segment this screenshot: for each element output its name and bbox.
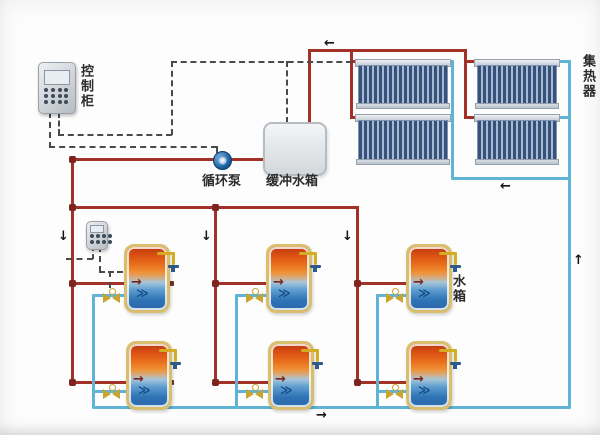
flow-arrow-down-3: ↓ bbox=[342, 230, 353, 243]
flow-arrow-collector-return: ← bbox=[500, 180, 511, 193]
buffer-tank-label: 缓冲水箱 bbox=[266, 170, 318, 189]
wire-run-upper bbox=[58, 134, 172, 136]
thermostat-keys bbox=[90, 234, 103, 244]
storage-tank-6: → ≫ bbox=[406, 341, 452, 410]
pipe-junction bbox=[69, 379, 76, 386]
faucet-icon bbox=[437, 346, 463, 372]
valve-tank5 bbox=[246, 385, 263, 399]
hot-stub-tank4 bbox=[71, 381, 133, 384]
solar-collector-panel-4 bbox=[477, 114, 557, 165]
solar-collector-panel-2 bbox=[358, 114, 448, 165]
faucet-icon bbox=[297, 249, 323, 275]
tank-cold-flow-icon: ≫ bbox=[418, 384, 431, 396]
storage-tank-1: → ≫ bbox=[124, 244, 170, 313]
storage-tank-5: → ≫ bbox=[268, 341, 314, 410]
wire-thermostat-4 bbox=[99, 271, 123, 273]
cold-collector-left-return bbox=[451, 60, 454, 179]
hot-riser-3 bbox=[356, 206, 359, 384]
wire-to-pump bbox=[49, 146, 217, 148]
storage-tank-4: → ≫ bbox=[126, 341, 172, 410]
cold-collector-cross bbox=[451, 177, 571, 180]
cold-right-main bbox=[568, 60, 571, 409]
tank-cold-flow-icon: ≫ bbox=[280, 384, 293, 396]
collector-footer bbox=[475, 103, 559, 109]
flow-arrow-right-up: ↑ bbox=[573, 254, 584, 267]
pipe-junction bbox=[354, 280, 361, 287]
cabinet-keypad bbox=[44, 88, 69, 104]
circulation-pump-icon bbox=[213, 151, 232, 170]
faucet-icon bbox=[299, 346, 325, 372]
pipe-junction bbox=[69, 204, 76, 211]
collector-tubes bbox=[358, 65, 448, 105]
pump-impeller-icon bbox=[218, 156, 227, 165]
pipe-junction bbox=[69, 156, 76, 163]
wire-thermostat-2 bbox=[66, 258, 93, 260]
pipe-junction bbox=[212, 204, 219, 211]
faucet-icon bbox=[437, 249, 463, 275]
cabinet-display bbox=[44, 70, 70, 85]
valve-tank4 bbox=[103, 385, 120, 399]
tank-cold-flow-icon: ≫ bbox=[136, 287, 149, 299]
valve-tank1 bbox=[103, 289, 120, 303]
valve-tank3 bbox=[386, 289, 403, 303]
valve-tank6 bbox=[386, 385, 403, 399]
hot-pipe-pump-line bbox=[71, 158, 264, 161]
thermostat-display bbox=[90, 225, 104, 233]
hot-pipe-left-main bbox=[71, 158, 74, 386]
tank-cold-flow-icon: ≫ bbox=[278, 287, 291, 299]
control-cabinet-label: 控制柜 bbox=[76, 64, 95, 109]
pipe-junction bbox=[212, 280, 219, 287]
flow-arrow-top-left: ← bbox=[324, 37, 335, 50]
solar-heating-system-diagram: ← ← ↑ ↓ ↓ ↓ → 控制柜 循环泵 缓冲水箱 集热器 → ≫ bbox=[0, 0, 600, 435]
collector-tubes bbox=[358, 120, 448, 161]
collector-footer bbox=[356, 103, 450, 109]
storage-tank-3: → ≫ bbox=[406, 244, 452, 313]
water-tank-label: 水箱 bbox=[448, 274, 467, 304]
collector-label: 集热器 bbox=[578, 54, 597, 99]
collector-tubes bbox=[477, 120, 557, 161]
buffer-tank bbox=[263, 122, 327, 176]
wire-buffer-sensor bbox=[286, 61, 288, 123]
solar-collector-panel-1 bbox=[358, 59, 448, 109]
pipe-junction bbox=[354, 379, 361, 386]
wire-thermostat-5 bbox=[109, 271, 111, 288]
wire-to-collector-sensor bbox=[171, 61, 352, 63]
wire-cabinet-down-2 bbox=[58, 112, 60, 135]
hot-stub-tank5 bbox=[214, 381, 276, 384]
collector-footer bbox=[475, 159, 559, 165]
tank-thermostat bbox=[86, 221, 108, 250]
pipe-junction bbox=[69, 280, 76, 287]
wire-rise bbox=[171, 61, 173, 135]
hot-riser-2 bbox=[214, 206, 217, 384]
collector-footer bbox=[356, 159, 450, 165]
faucet-icon bbox=[157, 346, 183, 372]
tank-cold-flow-icon: ≫ bbox=[138, 384, 151, 396]
control-cabinet bbox=[38, 62, 76, 114]
tank-cold-flow-icon: ≫ bbox=[418, 287, 431, 299]
flow-arrow-down-1: ↓ bbox=[58, 230, 69, 243]
collector-tubes bbox=[477, 65, 557, 105]
solar-collector-panel-3 bbox=[477, 59, 557, 109]
faucet-icon bbox=[155, 249, 181, 275]
pipe-junction bbox=[212, 379, 219, 386]
circulation-pump-label: 循环泵 bbox=[202, 170, 241, 189]
flow-arrow-down-2: ↓ bbox=[201, 230, 212, 243]
valve-tank2 bbox=[246, 289, 263, 303]
flow-arrow-bottom: → bbox=[316, 409, 327, 422]
wire-cabinet-down-1 bbox=[49, 112, 51, 148]
storage-tank-2: → ≫ bbox=[266, 244, 312, 313]
